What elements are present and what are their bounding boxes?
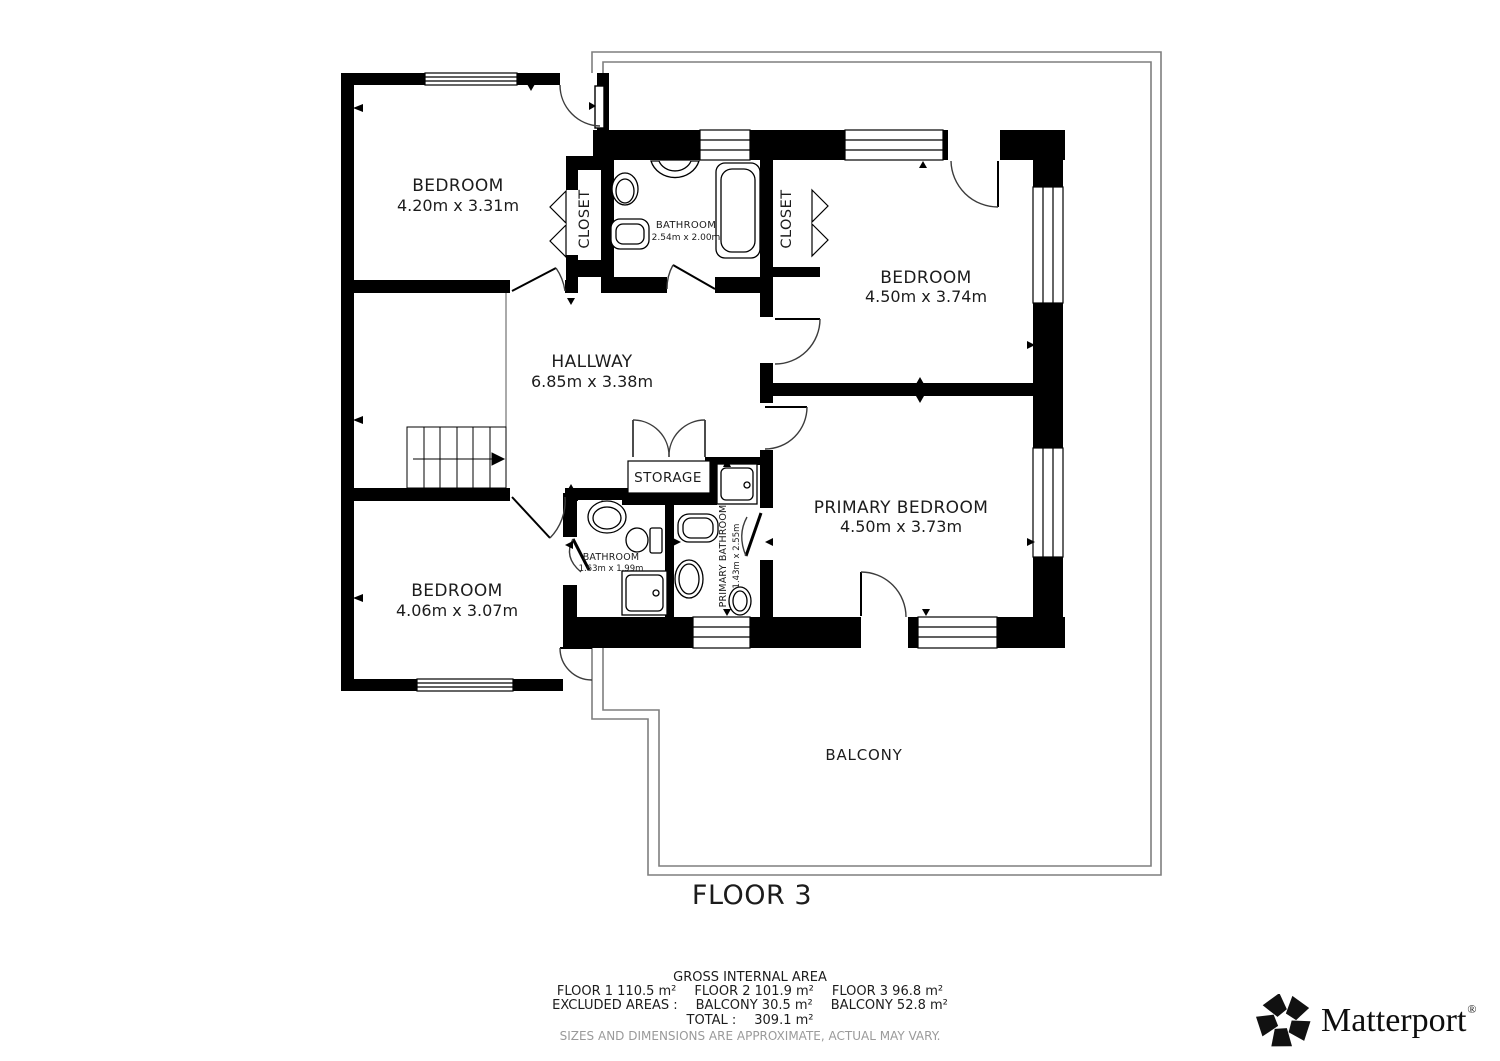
floor-title: FLOOR 3 <box>692 880 812 911</box>
svg-text:PRIMARY BEDROOM: PRIMARY BEDROOM <box>814 498 989 518</box>
window-bathroom1-top <box>700 130 750 160</box>
svg-text:4.20m x 3.31m: 4.20m x 3.31m <box>397 196 519 215</box>
room-label-balcony: BALCONY <box>825 746 902 764</box>
svg-text:CLOSET: CLOSET <box>577 189 593 248</box>
svg-text:4.06m x 3.07m: 4.06m x 3.07m <box>396 601 518 620</box>
floorplan-page: BEDROOM 4.20m x 3.31m BEDROOM 4.50m x 3.… <box>0 0 1500 1061</box>
door-primary-bathroom <box>742 513 761 556</box>
stairs <box>407 293 506 488</box>
svg-text:4.50m x 3.74m: 4.50m x 3.74m <box>865 287 987 306</box>
floor2-area: FLOOR 2 101.9 m² <box>694 984 814 999</box>
room-label-closet2: CLOSET <box>779 189 795 248</box>
toilet-bathroom2 <box>626 528 662 553</box>
room-label-bedroom1: BEDROOM 4.20m x 3.31m <box>397 176 519 215</box>
svg-text:4.50m x 3.73m: 4.50m x 3.73m <box>840 517 962 536</box>
svg-text:BEDROOM: BEDROOM <box>412 176 504 196</box>
door-balcony-southwest <box>560 648 592 680</box>
svg-text:BEDROOM: BEDROOM <box>880 268 972 288</box>
closet1-bifold-icon <box>550 191 566 257</box>
excluded-balcony1: BALCONY 30.5 m² <box>696 998 813 1013</box>
basin-primary-bathroom <box>675 560 703 598</box>
window-bedroom3-bottom <box>417 679 513 691</box>
stairs-direction-arrow <box>492 453 504 465</box>
svg-text:STORAGE: STORAGE <box>634 470 702 486</box>
door-storage-right <box>669 420 705 457</box>
room-label-bedroom3: BEDROOM 4.06m x 3.07m <box>396 581 518 620</box>
shower-primary-bathroom <box>717 464 757 504</box>
matterport-logo: Matterport® <box>1256 994 1477 1048</box>
sink-bathroom2 <box>588 501 626 533</box>
door-hallway-bedroom1 <box>512 268 565 291</box>
window-primarybath-bottom <box>693 617 750 648</box>
sink-bathroom1 <box>651 161 699 178</box>
excluded-areas-label: EXCLUDED AREAS : <box>552 998 678 1013</box>
excluded-balcony2: BALCONY 52.8 m² <box>831 998 948 1013</box>
bathtub-bathroom1 <box>716 163 760 258</box>
total-label: TOTAL : <box>687 1013 737 1028</box>
room-label-bedroom2: BEDROOM 4.50m x 3.74m <box>865 268 987 306</box>
toilet-bathroom1 <box>612 173 638 205</box>
door-primary-balcony <box>861 572 906 617</box>
room-label-bathroom2: BATHROOM 1.63m x 1.99m <box>579 552 644 574</box>
svg-text:1.43m x 2.55m: 1.43m x 2.55m <box>732 524 742 589</box>
svg-text:BALCONY: BALCONY <box>825 746 902 764</box>
door-bathroom1 <box>667 265 715 289</box>
svg-text:PRIMARY BATHROOM: PRIMARY BATHROOM <box>718 505 729 608</box>
floorplan-drawing: BEDROOM 4.20m x 3.31m BEDROOM 4.50m x 3.… <box>0 0 1500 1061</box>
shower-bathroom2 <box>622 571 667 615</box>
svg-text:BATHROOM: BATHROOM <box>656 220 716 231</box>
window-primary-right <box>1033 448 1063 557</box>
registered-mark: ® <box>1467 1002 1476 1016</box>
door-hallway-primary-bedroom <box>765 407 807 449</box>
svg-text:BATHROOM: BATHROOM <box>583 552 640 563</box>
matterport-logo-text: Matterport® <box>1321 1002 1477 1040</box>
bidet-bathroom1 <box>611 219 649 249</box>
svg-text:1.63m x 1.99m: 1.63m x 1.99m <box>579 564 644 574</box>
total-value: 309.1 m² <box>754 1013 813 1028</box>
room-label-bathroom1: BATHROOM 2.54m x 2.00m <box>652 220 721 243</box>
room-label-hallway: HALLWAY 6.85m x 3.38m <box>531 352 653 391</box>
svg-text:2.54m x 2.00m: 2.54m x 2.00m <box>652 233 721 243</box>
door-storage-left <box>633 420 669 457</box>
window-bedroom1-top <box>425 73 517 85</box>
window-bedroom2-right <box>1033 187 1063 303</box>
area-summary-title: GROSS INTERNAL AREA <box>0 971 1500 985</box>
window-bedroom2-top <box>845 130 943 160</box>
svg-text:6.85m x 3.38m: 6.85m x 3.38m <box>531 372 653 391</box>
room-label-primary-bedroom: PRIMARY BEDROOM 4.50m x 3.73m <box>814 498 989 536</box>
floor3-area: FLOOR 3 96.8 m² <box>832 984 943 999</box>
room-label-closet1: CLOSET <box>577 189 593 248</box>
closet2-bifold-icon <box>812 190 828 256</box>
door-hallway-bedroom2 <box>775 319 820 364</box>
door-bedroom2-balcony <box>951 161 998 207</box>
room-label-storage: STORAGE <box>634 470 702 486</box>
matterport-wordmark: Matterport <box>1321 1002 1466 1039</box>
window-primary-bottom <box>918 617 997 648</box>
door-bedroom1-balcony <box>560 85 604 128</box>
svg-text:BEDROOM: BEDROOM <box>411 581 503 601</box>
matterport-pinwheel-icon <box>1256 994 1312 1048</box>
svg-text:HALLWAY: HALLWAY <box>551 352 632 372</box>
toilet-primary-bathroom <box>729 587 751 615</box>
sink-primary-bathroom <box>678 514 718 542</box>
floor1-area: FLOOR 1 110.5 m² <box>557 984 677 999</box>
door-hallway-bedroom3 <box>512 497 565 538</box>
svg-text:CLOSET: CLOSET <box>779 189 795 248</box>
